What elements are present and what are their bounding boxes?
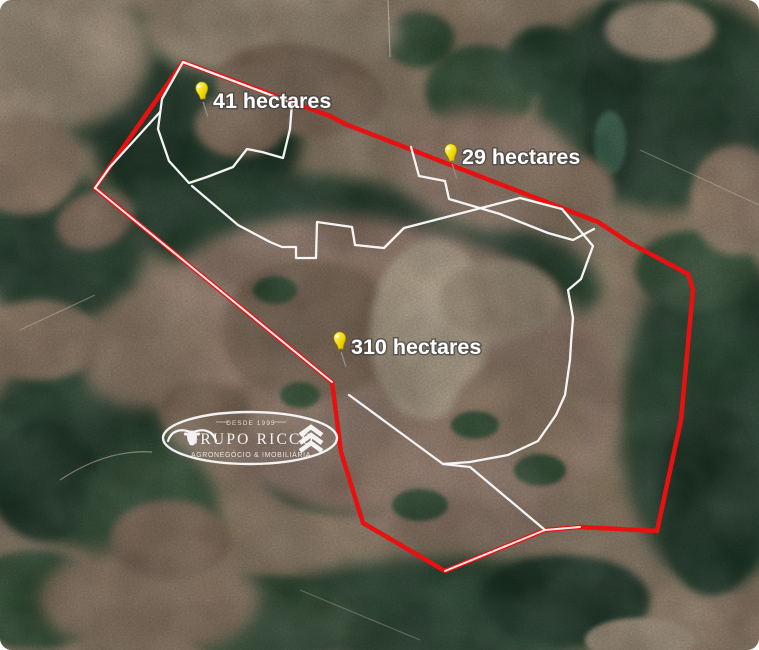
brand-name: GRUPO RICCO (187, 431, 315, 448)
satellite-map: 41 hectares 29 hectares 310 hectares (0, 0, 759, 650)
satellite-imagery (0, 0, 759, 650)
brand-tagline: AGRONEGÓCIO & IMOBILIÁRIA (191, 450, 311, 459)
marker-label: 310 hectares (351, 335, 481, 359)
brand-watermark: DESDE 1995 GRUPO RICCO AGRONEGÓCIO & IMO… (163, 412, 337, 464)
marker-label: 29 hectares (462, 145, 580, 169)
brand-since: DESDE 1995 (226, 420, 275, 427)
marker-label: 41 hectares (213, 89, 331, 113)
